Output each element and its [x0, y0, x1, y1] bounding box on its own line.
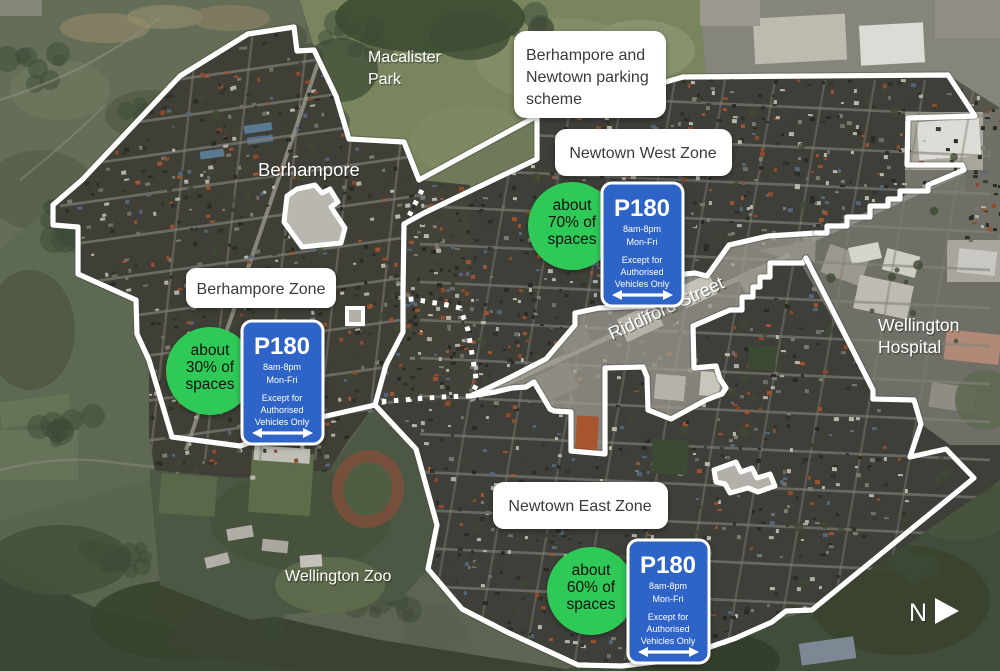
svg-text:Park: Park: [368, 71, 402, 88]
svg-text:P180: P180: [254, 333, 310, 360]
svg-text:P180: P180: [614, 195, 670, 222]
svg-text:Newtown parking: Newtown parking: [526, 69, 649, 86]
svg-text:8am-8pm: 8am-8pm: [623, 224, 661, 234]
svg-text:Authorised: Authorised: [646, 624, 689, 634]
svg-text:Except for: Except for: [622, 255, 663, 265]
svg-text:Wellington Zoo: Wellington Zoo: [285, 568, 392, 585]
svg-text:Wellington: Wellington: [878, 315, 959, 335]
svg-text:Macalister: Macalister: [368, 49, 442, 66]
svg-text:Newtown East Zone: Newtown East Zone: [508, 498, 651, 515]
svg-text:Authorised: Authorised: [620, 267, 663, 277]
svg-text:N: N: [909, 599, 927, 627]
svg-text:Vehicles Only: Vehicles Only: [615, 279, 670, 289]
svg-text:Newtown West Zone: Newtown West Zone: [569, 145, 716, 162]
svg-text:about: about: [553, 197, 592, 214]
svg-text:spaces: spaces: [185, 376, 234, 393]
svg-text:Except for: Except for: [262, 393, 303, 403]
svg-text:Vehicles Only: Vehicles Only: [255, 417, 310, 427]
svg-text:Except for: Except for: [648, 612, 689, 622]
svg-text:70% of: 70% of: [548, 214, 597, 231]
svg-text:about: about: [191, 342, 230, 359]
svg-text:Authorised: Authorised: [260, 405, 303, 415]
svg-text:Mon-Fri: Mon-Fri: [627, 237, 658, 247]
svg-text:8am-8pm: 8am-8pm: [263, 362, 301, 372]
svg-text:about: about: [572, 562, 611, 579]
svg-text:60% of: 60% of: [567, 579, 616, 596]
svg-text:Mon-Fri: Mon-Fri: [653, 594, 684, 604]
svg-text:30% of: 30% of: [186, 359, 235, 376]
svg-text:spaces: spaces: [566, 596, 615, 613]
svg-text:Hospital: Hospital: [878, 337, 941, 357]
svg-text:Mon-Fri: Mon-Fri: [267, 375, 298, 385]
svg-text:8am-8pm: 8am-8pm: [649, 581, 687, 591]
svg-text:scheme: scheme: [526, 91, 582, 108]
svg-text:Berhampore and: Berhampore and: [526, 47, 645, 64]
svg-text:P180: P180: [640, 552, 696, 579]
svg-text:Berhampore Zone: Berhampore Zone: [197, 281, 326, 298]
svg-text:Berhampore: Berhampore: [258, 159, 360, 180]
svg-text:spaces: spaces: [547, 231, 596, 248]
svg-text:Vehicles Only: Vehicles Only: [641, 636, 696, 646]
